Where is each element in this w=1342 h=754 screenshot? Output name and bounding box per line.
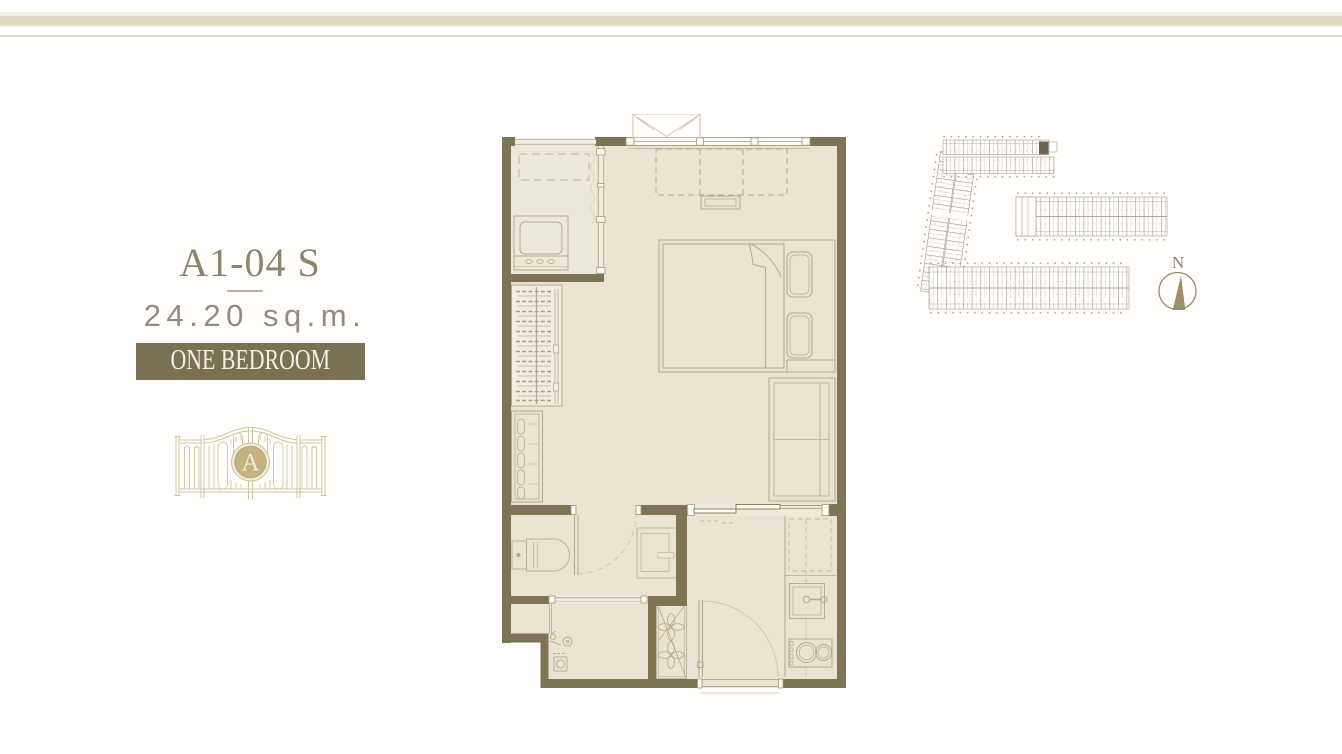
svg-text:A: A — [241, 450, 259, 477]
svg-text:N: N — [1172, 253, 1184, 272]
